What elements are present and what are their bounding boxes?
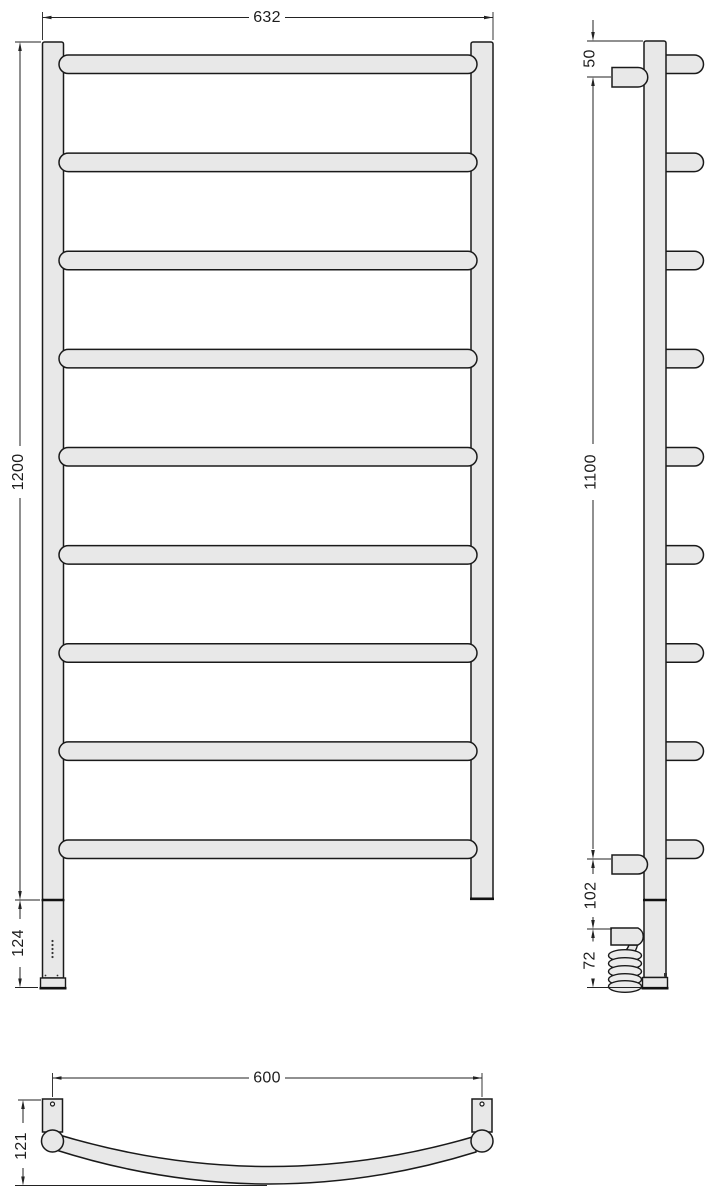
side-indicator-mark	[664, 973, 667, 977]
towel-bar	[59, 644, 477, 663]
bottom-depth-label: 121	[13, 1132, 30, 1160]
side-heater-housing	[644, 900, 666, 978]
front-heater-housing	[43, 900, 64, 978]
dimension-side-connection-offset: 102	[583, 859, 613, 929]
towel-bar	[59, 742, 477, 761]
left-bar-joint	[42, 1130, 64, 1152]
bowed-bar	[56, 1134, 476, 1184]
front-left-post	[43, 42, 64, 900]
dimension-side-bracket-span: 1100	[583, 86, 612, 859]
bottom-rail-width-label: 600	[253, 1070, 281, 1087]
front-right-post	[471, 42, 493, 899]
front-view	[40, 42, 495, 988]
dimension-bottom-rail-width: 600	[53, 1070, 483, 1098]
side-connection-offset-label: 102	[583, 882, 600, 910]
side-top-offset-label: 50	[582, 49, 599, 67]
right-bar-joint	[471, 1130, 493, 1152]
front-bars	[59, 55, 477, 859]
left-mount-hole	[51, 1102, 55, 1106]
power-cable-coil	[609, 950, 642, 993]
towel-bar	[59, 153, 477, 172]
front-heater-label: 124	[10, 929, 27, 957]
bottom-view	[42, 1099, 494, 1184]
side-heater-cap	[643, 978, 668, 989]
side-view	[609, 41, 704, 992]
towel-bar	[59, 448, 477, 467]
dimension-front-height: 1200	[10, 42, 41, 900]
towel-bar	[59, 349, 477, 368]
front-height-label: 1200	[10, 454, 27, 491]
wall-bracket-top	[612, 68, 648, 88]
electric-connection-box	[611, 928, 643, 945]
drawing-page: 632 1200 124 50	[0, 0, 714, 1200]
dimension-front-heater: 124	[10, 900, 38, 988]
towel-bar	[59, 546, 477, 565]
side-rail	[644, 41, 666, 900]
side-bracket-span-label: 1100	[583, 454, 600, 490]
side-cable-drop-label: 72	[582, 951, 599, 969]
towel-bar	[59, 840, 477, 859]
right-mount-hole	[480, 1102, 484, 1106]
dimensions: 632 1200 124 50	[10, 9, 643, 1186]
towel-bar	[59, 251, 477, 269]
towel-bar	[59, 55, 477, 74]
front-width-label: 632	[253, 9, 281, 26]
dimension-front-width: 632	[43, 9, 494, 40]
wall-bracket-bottom	[612, 855, 648, 874]
technical-drawing: 632 1200 124 50	[0, 0, 714, 1200]
front-heater-cap	[41, 978, 66, 988]
